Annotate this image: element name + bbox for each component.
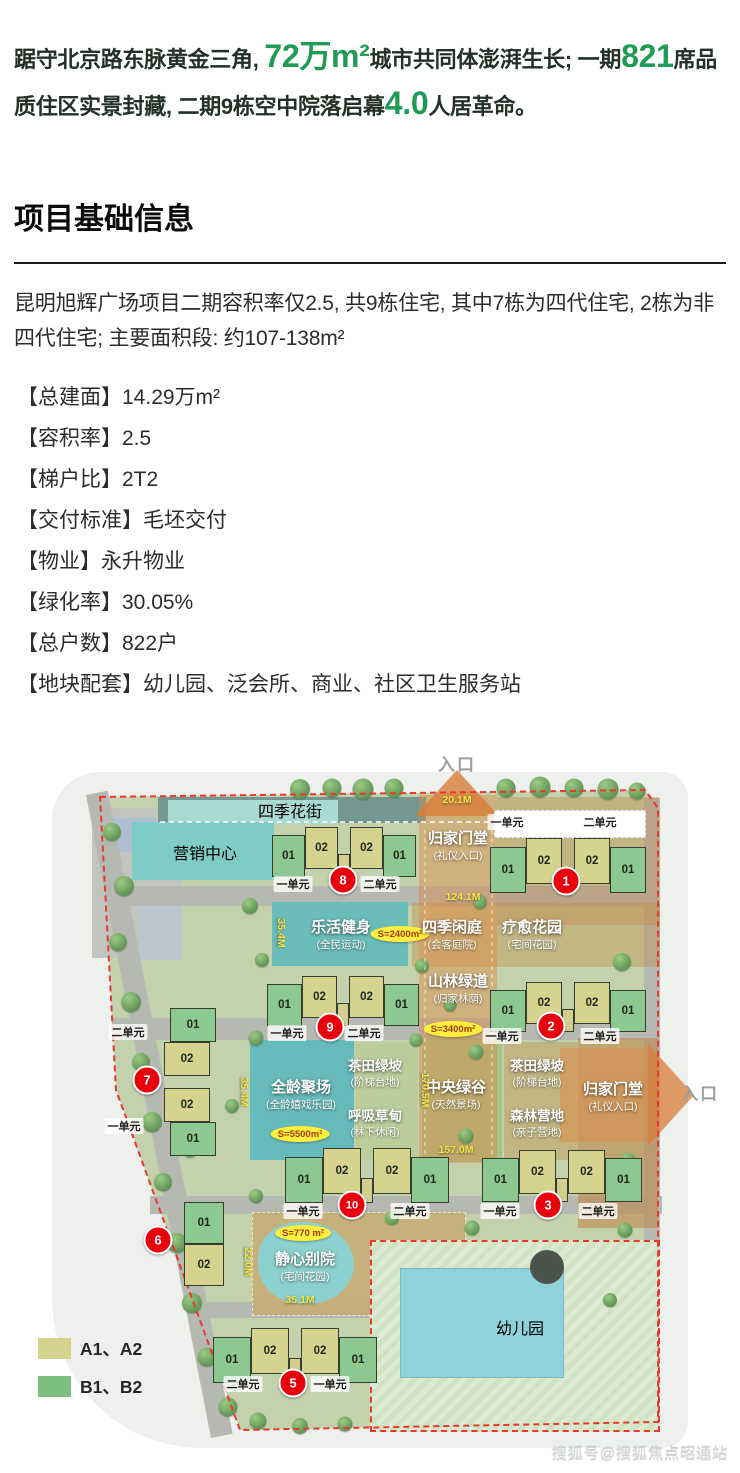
- info-item-delivery: 【交付标准】毛坯交付: [17, 500, 729, 541]
- building-6-unit-02-1: 02: [184, 1244, 224, 1286]
- section-divider: [14, 262, 726, 264]
- building-6-unit-01-0: 01: [184, 1202, 224, 1244]
- hero-highlight-40: 4.0: [385, 85, 429, 121]
- legend-swatch-a: [38, 1338, 71, 1359]
- map-label-dim-124-1: 124.1M: [445, 891, 480, 903]
- legend-row-b: B1、B2: [38, 1374, 142, 1399]
- map-label-quanling: 全龄聚场(全龄嬉戏乐园): [266, 1076, 336, 1112]
- map-label-marketing: 营销中心: [173, 840, 237, 864]
- map-label-dim-35-4b: 35.4M: [238, 1077, 250, 1106]
- entrance-label-right: 入口: [681, 1080, 719, 1105]
- building-2-unit-02-2: 02: [574, 982, 610, 1024]
- building-9-unit-01-3: 01: [384, 984, 419, 1026]
- building-7-unit-02-1: 02: [164, 1042, 210, 1076]
- building-5-number-marker: 5: [279, 1369, 308, 1398]
- map-label-dim-22-0: 22.0M: [242, 1247, 254, 1276]
- legend-label-a: A1、A2: [80, 1336, 142, 1361]
- map-label-dim-157-0: 157.0M: [438, 1144, 473, 1156]
- map-label-chatian-a: 茶田绿坡(阶梯台地): [348, 1055, 402, 1090]
- building-7: 01020201: [164, 1008, 210, 1156]
- building-10-number-marker: 10: [338, 1191, 367, 1220]
- map-label-shanlin: 山林绿道(归家林荫): [428, 970, 488, 1006]
- building-6-number-marker: 6: [144, 1226, 173, 1255]
- building-7-unit-01-0: 01: [170, 1008, 216, 1042]
- building-1-number-marker: 1: [552, 867, 581, 896]
- hero-highlight-72: 72万m²: [264, 38, 369, 74]
- map-label-kindergarten: 幼儿园: [496, 1315, 544, 1339]
- map-label-dim-35-4a: 35.4M: [275, 918, 287, 947]
- map-label-senlin: 森林营地(亲子营地): [510, 1105, 564, 1140]
- building-8-unit-01-0: 01: [272, 835, 305, 877]
- building-2-number-marker: 2: [537, 1012, 566, 1041]
- building-3-group-label-1: 一单元: [481, 1203, 520, 1219]
- building-8-group-label-1: 一单元: [274, 876, 313, 892]
- building-10-unit-01-3: 01: [411, 1157, 449, 1203]
- map-legend: A1、A2 B1、B2: [38, 1336, 142, 1412]
- legend-row-a: A1、A2: [38, 1336, 142, 1361]
- building-1-unit-01-3: 01: [610, 847, 646, 893]
- building-3-unit-01-0: 01: [482, 1158, 519, 1202]
- building-8-number-marker: 8: [329, 866, 358, 895]
- building-10-unit-02-1: 02: [323, 1148, 361, 1194]
- info-item-plot-ratio: 【容积率】2.5: [17, 418, 729, 459]
- building-9-number-marker: 9: [316, 1013, 345, 1042]
- building-2-unit-01-3: 01: [610, 990, 646, 1032]
- building-8-unit-01-3: 01: [383, 835, 416, 877]
- building-9-unit-01-0: 01: [267, 984, 302, 1026]
- building-10: 01020201: [285, 1148, 449, 1203]
- building-3-unit-02-1: 02: [519, 1150, 556, 1194]
- map-label-s770: S=770 m²: [275, 1225, 331, 1241]
- building-9-group-label-2: 二单元: [345, 1025, 384, 1041]
- entrance-label-top: 入口: [438, 751, 476, 776]
- map-label-huxi: 呼吸草甸(林下休闲): [348, 1105, 402, 1140]
- watermark: 搜狐号@搜狐焦点昭通站: [552, 1443, 728, 1464]
- building-9: 01020201: [267, 976, 419, 1026]
- building-10-unit-02-2: 02: [373, 1148, 411, 1194]
- section-title: 项目基础信息: [14, 194, 194, 238]
- info-item-households: 【总户数】822户: [17, 623, 729, 664]
- building-5-group-label-1: 二单元: [224, 1376, 263, 1392]
- building-7-group-label-2: 一单元: [105, 1118, 144, 1134]
- article-page: 踞守北京路东脉黄金三角, 72万m²城市共同体澎湃生长; 一期821席品质住区实…: [0, 0, 740, 1473]
- building-6: 0102: [184, 1202, 224, 1286]
- building-10-group-label-1: 一单元: [284, 1203, 323, 1219]
- building-7-group-label-1: 二单元: [109, 1024, 148, 1040]
- building-8-unit-02-1: 02: [305, 827, 338, 869]
- building-8-group-label-2: 二单元: [361, 876, 400, 892]
- building-2-group-label-1: 一单元: [483, 1028, 522, 1044]
- building-9-unit-02-2: 02: [349, 976, 384, 1018]
- site-plan-map: 20.1M四季花街营销中心归家门堂(礼仪入口)124.1M35.4M乐活健身(全…: [0, 740, 740, 1473]
- legend-label-b: B1、B2: [80, 1374, 142, 1399]
- info-item-amenities: 【地块配套】幼儿园、泛会所、商业、社区卫生服务站: [17, 664, 729, 705]
- map-label-zhongyang: 中央绿谷(天然景场): [426, 1076, 486, 1112]
- legend-swatch-b: [38, 1376, 71, 1397]
- building-3-unit-01-3: 01: [605, 1158, 642, 1202]
- hero-text-2: 城市共同体澎湃生长; 一期: [370, 47, 622, 72]
- map-label-siji: 四季闲庭(会客庭院): [422, 916, 482, 952]
- building-1-group-label-2: 二单元: [581, 814, 620, 830]
- building-5-group-label-2: 一单元: [311, 1376, 350, 1392]
- map-label-street: 四季花街: [258, 798, 322, 822]
- building-10-unit-01-0: 01: [285, 1157, 323, 1203]
- building-3-number-marker: 3: [534, 1191, 563, 1220]
- map-label-s2400: S=2400m²: [371, 926, 430, 942]
- map-label-s3400: S=3400m²: [424, 1021, 483, 1037]
- building-3-unit-02-2: 02: [568, 1150, 605, 1194]
- building-1-group-label-1: 一单元: [488, 814, 527, 830]
- map-label-liaoyu: 疗愈花园(宅间花园): [502, 916, 562, 952]
- building-7-number-marker: 7: [133, 1066, 162, 1095]
- building-3-group-label-2: 二单元: [579, 1203, 618, 1219]
- building-7-unit-01-3: 01: [170, 1122, 216, 1156]
- building-5-unit-02-1: 02: [251, 1328, 289, 1374]
- hero-text-1: 踞守北京路东脉黄金三角,: [14, 47, 264, 72]
- building-3: 01020201: [482, 1150, 642, 1202]
- building-8-unit-02-2: 02: [350, 827, 383, 869]
- building-2-group-label-2: 二单元: [581, 1028, 620, 1044]
- map-label-s5500: S=5500m²: [271, 1126, 330, 1142]
- project-intro: 昆明旭辉广场项目二期容积率仅2.5, 共9栋住宅, 其中7栋为四代住宅, 2栋为…: [14, 286, 730, 356]
- info-item-gfa: 【总建面】14.29万m²: [17, 377, 729, 418]
- map-label-dim-20-1: 20.1M: [442, 794, 471, 806]
- building-1-unit-01-0: 01: [490, 847, 526, 893]
- map-label-dim-170-5: 170.5M: [419, 1072, 431, 1107]
- building-5-unit-02-2: 02: [301, 1328, 339, 1374]
- building-2-unit-01-0: 01: [490, 990, 526, 1032]
- map-label-gate-top: 归家门堂(礼仪入口): [428, 827, 488, 863]
- info-item-elevator-ratio: 【梯户比】2T2: [17, 459, 729, 500]
- building-10-group-label-2: 二单元: [391, 1203, 430, 1219]
- building-7-connector: [182, 1076, 210, 1088]
- map-label-dim-35-1: 35.1M: [285, 1294, 314, 1306]
- map-label-chatian-b: 茶田绿坡(阶梯台地): [510, 1055, 564, 1090]
- building-2: 01020201: [490, 982, 646, 1032]
- map-label-lehuo: 乐活健身(全民运动): [311, 916, 371, 952]
- building-7-unit-02-2: 02: [164, 1088, 210, 1122]
- building-9-group-label-1: 一单元: [268, 1025, 307, 1041]
- map-label-gate-right: 归家门堂(礼仪入口): [583, 1078, 643, 1114]
- info-item-greening: 【绿化率】30.05%: [17, 582, 729, 623]
- hero-text-4: 人居革命。: [428, 94, 537, 119]
- hero-headline: 踞守北京路东脉黄金三角, 72万m²城市共同体澎湃生长; 一期821席品质住区实…: [14, 36, 728, 130]
- hero-highlight-821: 821: [621, 38, 674, 74]
- map-label-jingxin: 静心别院(宅间花园): [275, 1248, 335, 1284]
- info-item-property: 【物业】永升物业: [17, 541, 729, 582]
- project-info-list: 【总建面】14.29万m² 【容积率】2.5 【梯户比】2T2 【交付标准】毛坯…: [17, 377, 729, 705]
